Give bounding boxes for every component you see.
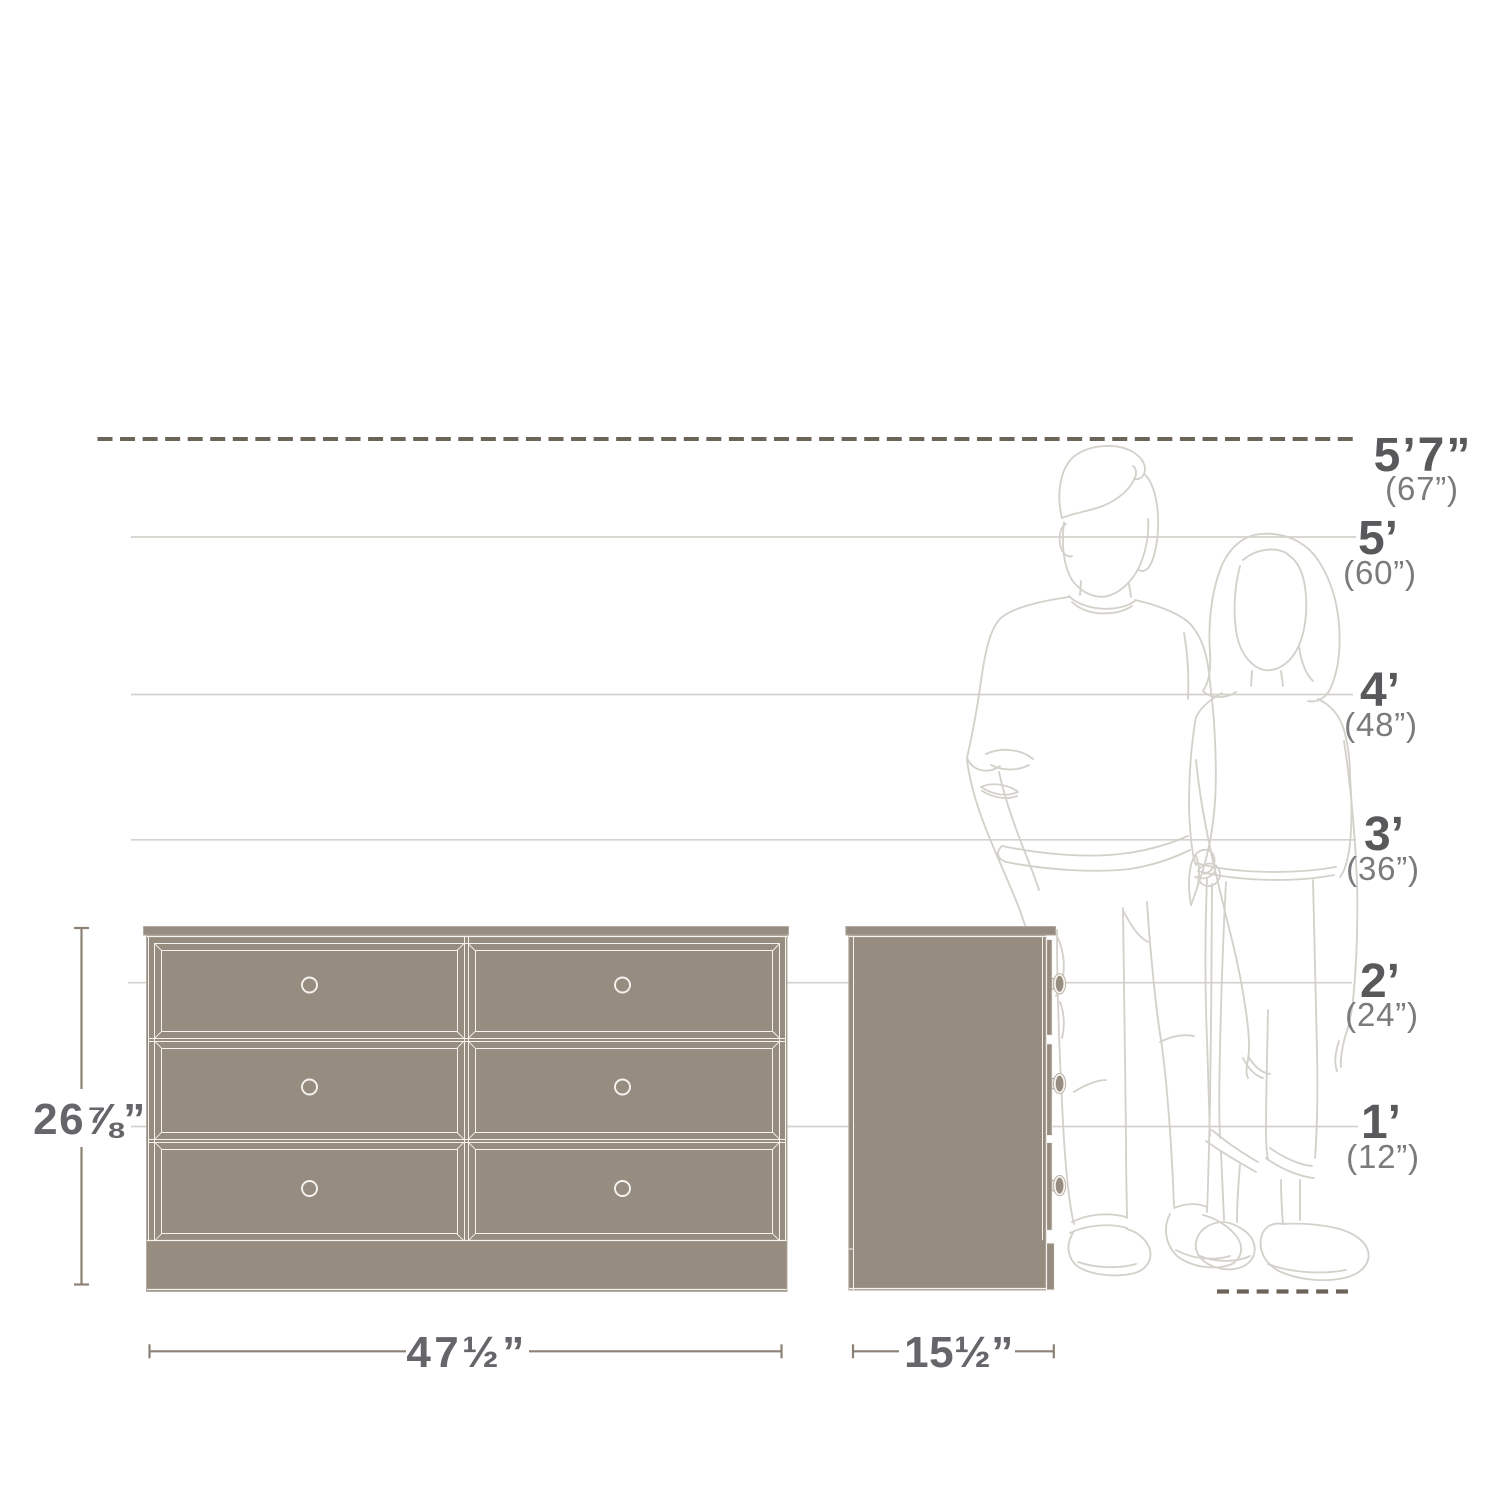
svg-text:(60”): (60”) <box>1343 554 1417 591</box>
svg-text:(67”): (67”) <box>1385 470 1459 507</box>
svg-text:(12”): (12”) <box>1346 1138 1420 1175</box>
svg-text:(36”): (36”) <box>1346 850 1420 887</box>
svg-text:(24”): (24”) <box>1345 996 1419 1033</box>
svg-text:26⅞”: 26⅞” <box>33 1095 147 1144</box>
svg-text:47½”: 47½” <box>406 1328 527 1377</box>
svg-text:(48”): (48”) <box>1344 706 1418 743</box>
svg-text:15½”: 15½” <box>904 1328 1014 1377</box>
